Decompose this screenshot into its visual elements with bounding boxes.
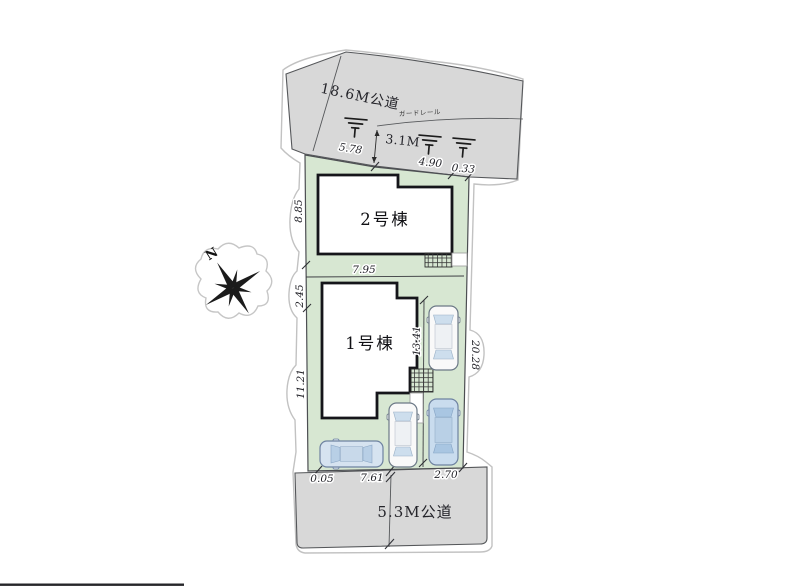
car [320, 439, 383, 469]
page-edge-line [0, 584, 184, 586]
site-plan-svg: 18.6M公道 ガードレール 3.1M 5.3M公道 [0, 0, 800, 587]
dim-right: 20.28 [469, 339, 481, 370]
dim-bottom-2: 7.61 [360, 472, 383, 484]
car [427, 399, 460, 465]
building-2-step [452, 253, 467, 266]
building-2-label: 2号棟 [360, 210, 410, 229]
car [387, 403, 419, 467]
building-1-porch [411, 369, 433, 392]
site-plan: 18.6M公道 ガードレール 3.1M 5.3M公道 [0, 0, 800, 587]
building-2-porch [425, 253, 452, 267]
building-1-label: 1号棟 [345, 334, 395, 353]
dim-left-2: 2.45 [294, 284, 306, 309]
dim-lot-width: 7.95 [352, 264, 376, 276]
dim-left-1: 8.85 [293, 199, 305, 223]
dim-left-3: 11.21 [295, 369, 307, 399]
dim-parking-length: 13.41 [411, 326, 423, 356]
dim-bottom-1: 0.05 [310, 473, 334, 485]
dim-top-3: 0.33 [451, 162, 476, 176]
dim-bottom-3: 2.70 [433, 469, 458, 481]
dim-top-2: 4.90 [417, 156, 443, 171]
car [427, 306, 460, 370]
building-2: 2号棟 [318, 175, 467, 267]
bottom-road-name: 5.3M公道 [377, 503, 452, 521]
